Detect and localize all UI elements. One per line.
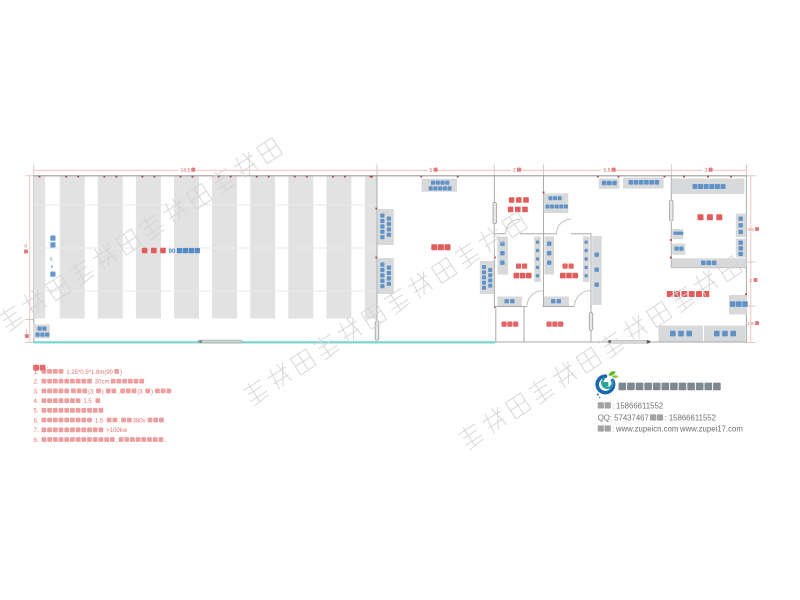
svg-text:8.: 8. (34, 438, 39, 444)
svg-text:4.: 4. (34, 399, 39, 405)
svg-text:,: , (117, 389, 119, 395)
svg-text:5: 5 (430, 168, 433, 174)
svg-text:1.5: 1.5 (83, 399, 92, 405)
svg-text:1: 1 (25, 329, 28, 334)
svg-text:30cm: 30cm (95, 380, 110, 386)
svg-text:.: . (165, 418, 167, 424)
svg-text:7.: 7. (34, 428, 39, 434)
svg-text:5.: 5. (34, 409, 39, 415)
svg-text:,: , (116, 438, 118, 444)
svg-text:3.: 3. (34, 389, 39, 395)
svg-text:.: . (164, 438, 166, 444)
svg-text:2: 2 (513, 168, 516, 174)
svg-text:): ) (102, 389, 104, 395)
svg-text:(3: (3 (88, 389, 94, 395)
svg-text:2: 2 (750, 278, 753, 283)
svg-text:): ) (151, 389, 153, 395)
svg-text:www.zupei17.com: www.zupei17.com (679, 424, 743, 433)
svg-text:14.5: 14.5 (181, 168, 191, 174)
svg-text::: : (612, 401, 614, 410)
svg-text:>100kw: >100kw (106, 428, 128, 434)
svg-text:3.5: 3.5 (748, 227, 755, 232)
svg-text:15866611552: 15866611552 (616, 401, 663, 410)
svg-text:(3: (3 (137, 389, 143, 395)
svg-text:8: 8 (25, 244, 28, 249)
svg-text:.: . (676, 424, 678, 433)
svg-text:QQ: 57437467: QQ: 57437467 (598, 413, 649, 422)
svg-text:380v: 380v (133, 418, 146, 424)
svg-text::: : (612, 424, 614, 433)
svg-text:,: , (118, 418, 120, 424)
svg-text:www.zupeicn.com: www.zupeicn.com (615, 424, 678, 433)
svg-text:6: 6 (51, 264, 54, 269)
svg-text:0.: 0. (50, 257, 54, 262)
svg-text:2.: 2. (34, 380, 39, 386)
svg-text:3: 3 (705, 168, 708, 174)
svg-text:): ) (120, 370, 122, 376)
svg-text:1.5: 1.5 (95, 418, 104, 424)
svg-text:1.: 1. (34, 370, 39, 376)
svg-text:: 15866611552: : 15866611552 (665, 413, 716, 422)
svg-text:5.5: 5.5 (604, 168, 611, 174)
svg-text:6.: 6. (34, 418, 39, 424)
svg-text:1.25*0.5*1.8m(90: 1.25*0.5*1.8m(90 (66, 370, 113, 376)
svg-text:90: 90 (169, 248, 176, 255)
svg-text:1.5: 1.5 (748, 321, 755, 326)
